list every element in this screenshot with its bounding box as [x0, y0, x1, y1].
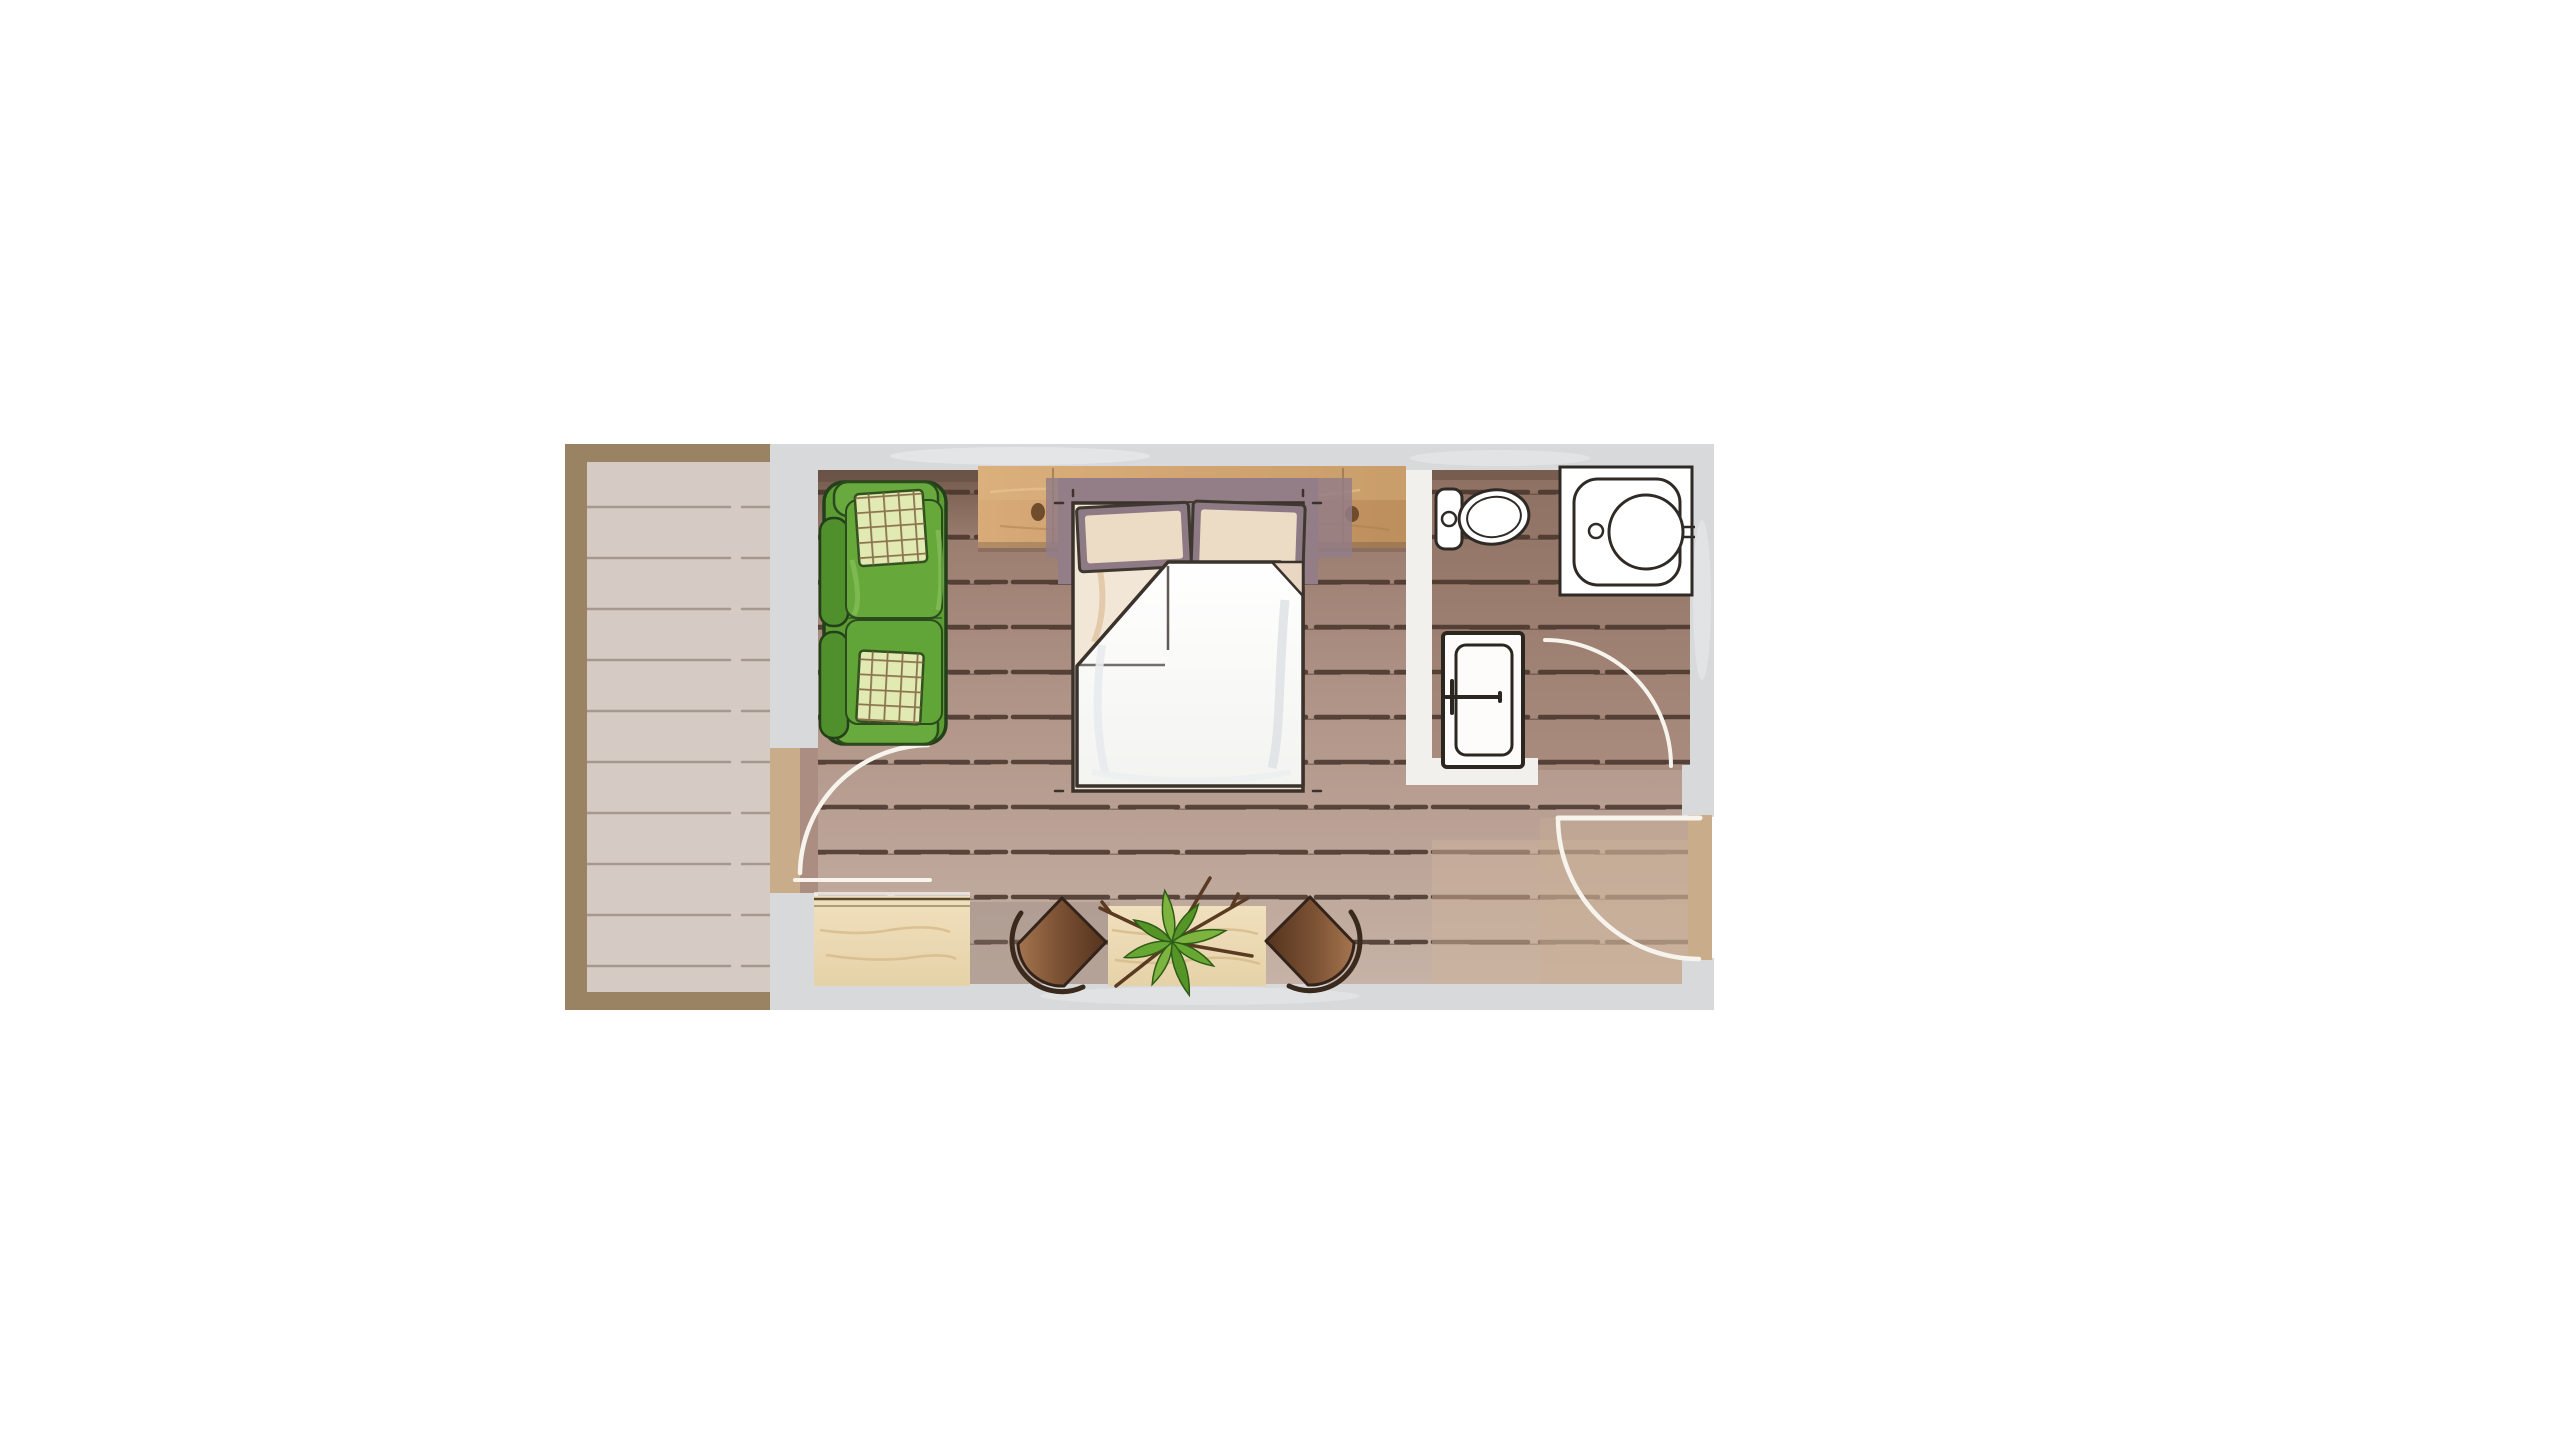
balcony: [565, 444, 770, 1010]
wall-highlight: [1410, 450, 1590, 466]
wall-highlight: [890, 447, 1150, 465]
console-top: [814, 896, 970, 986]
washbasin-tap: [1589, 524, 1603, 538]
washbasin-bowl: [1609, 495, 1683, 569]
console-edge-light: [814, 892, 970, 896]
wall-right-mid: [1682, 765, 1714, 817]
washbasin: [1560, 467, 1695, 595]
wall-right-lower: [1682, 958, 1714, 1010]
entry-door-threshold: [1688, 815, 1712, 960]
bathroom-partition-wall: [1406, 470, 1432, 785]
balcony-door-threshold: [770, 748, 802, 893]
checkered-cushion-grid: [856, 650, 924, 724]
wood-knot: [1031, 503, 1045, 521]
sofa: [820, 482, 946, 744]
entry-floor-tint-2: [1540, 818, 1690, 984]
console: [814, 892, 970, 986]
balcony-plank-lines: [587, 462, 770, 992]
sofa-pillow-top: [855, 490, 928, 567]
balcony-door-floor: [800, 748, 818, 893]
sofa-back-cushion: [820, 518, 848, 626]
pillow-center: [1085, 511, 1183, 564]
toilet-flush-button: [1442, 512, 1456, 526]
checkered-cushion-grid: [855, 490, 928, 567]
sofa-pillow-bottom: [856, 650, 924, 724]
wall-left-upper: [770, 470, 818, 748]
wall-highlight: [1693, 520, 1711, 680]
floor-plan-illustration: [540, 420, 1740, 1032]
sofa-back-cushion: [820, 632, 848, 738]
pillow-center: [1199, 509, 1297, 568]
page-background: [0, 0, 2560, 1440]
